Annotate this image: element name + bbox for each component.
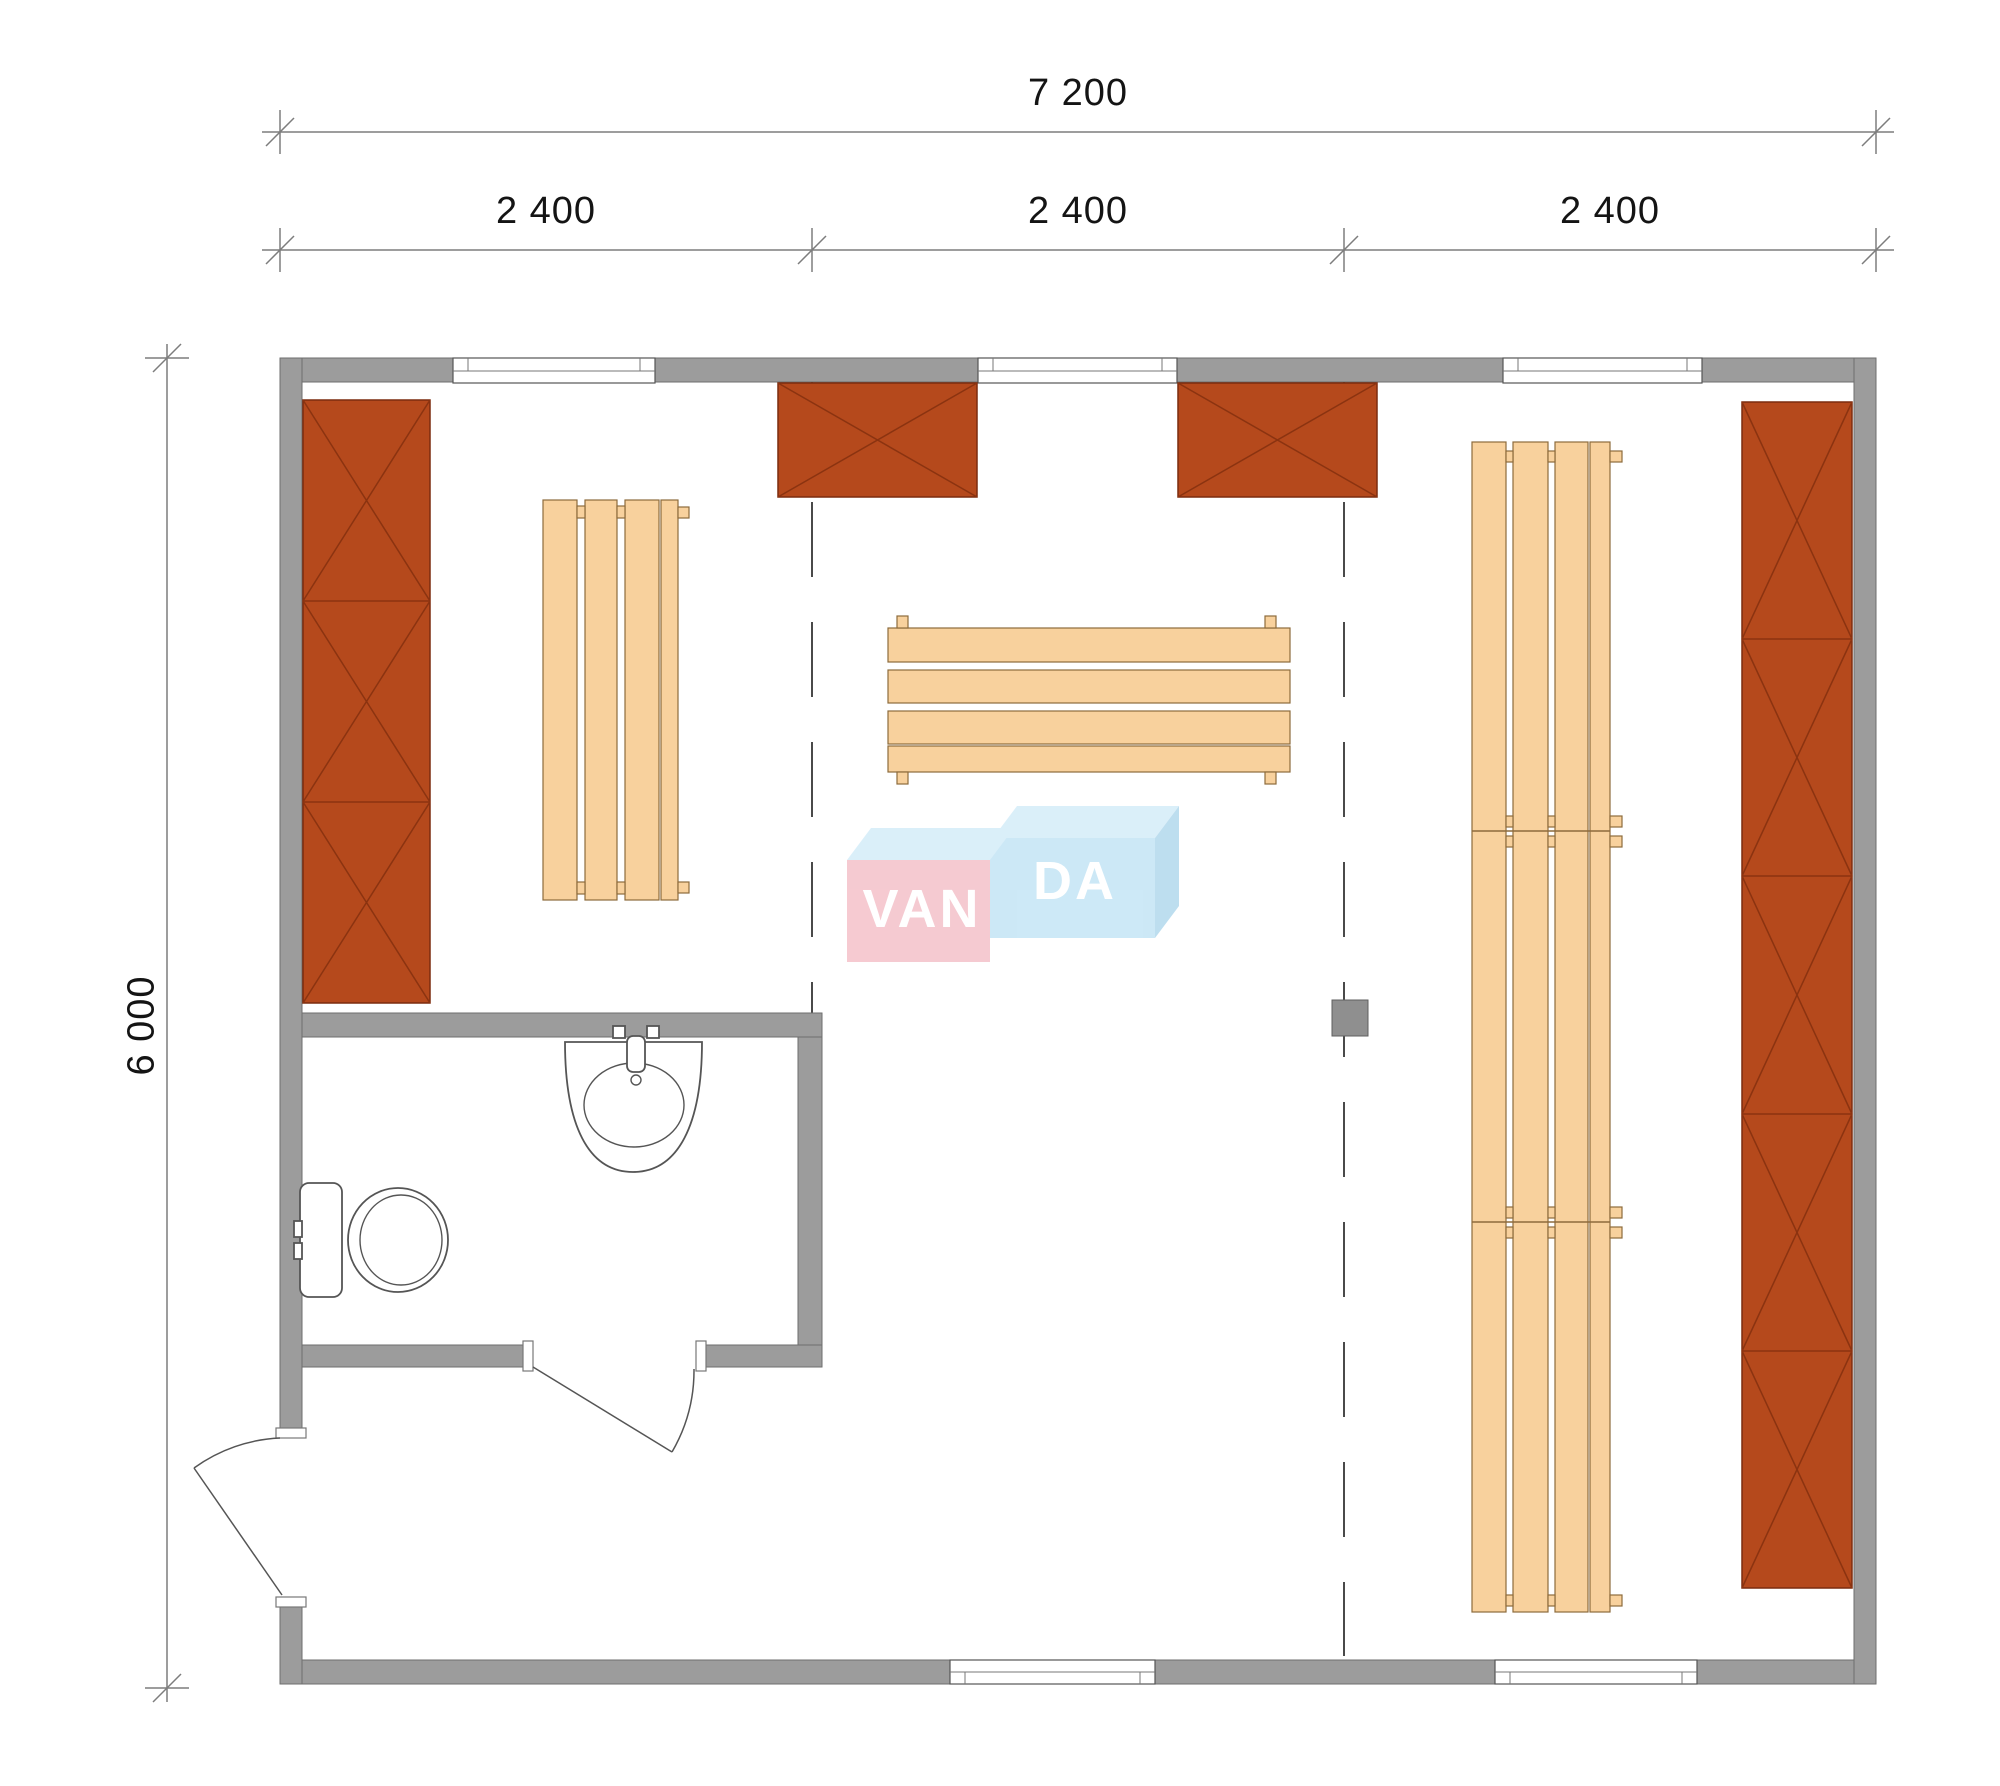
logo-pink-top-face bbox=[847, 828, 1014, 860]
module-width-label-3: 2 400 bbox=[1510, 190, 1710, 233]
window-bottom-middle bbox=[950, 1660, 1155, 1684]
window-top-middle bbox=[978, 358, 1177, 383]
window-bottom-right bbox=[1495, 1660, 1697, 1684]
logo-text-van: VAN bbox=[847, 878, 997, 940]
logo-blue-top-face bbox=[993, 806, 1179, 838]
module-width-label-1: 2 400 bbox=[446, 190, 646, 233]
entrance-door bbox=[194, 1428, 306, 1607]
module-width-label-2: 2 400 bbox=[978, 190, 1178, 233]
right-bench bbox=[1472, 442, 1622, 1612]
bathroom-door bbox=[533, 1367, 694, 1452]
height-label: 6 000 bbox=[121, 926, 164, 1126]
dimension-line-modules bbox=[262, 228, 1894, 272]
left-bench bbox=[543, 500, 689, 900]
floor-plan: 7 200 2 400 2 400 2 400 6 000 VAN DA bbox=[0, 0, 2000, 1786]
top-box-right bbox=[1178, 383, 1377, 497]
total-width-label: 7 200 bbox=[978, 72, 1178, 115]
sink bbox=[565, 1026, 702, 1172]
window-top-left bbox=[453, 358, 655, 383]
logo-text-da: DA bbox=[1000, 850, 1150, 912]
toilet bbox=[294, 1183, 448, 1297]
window-top-right bbox=[1503, 358, 1702, 383]
right-cabinet bbox=[1742, 402, 1852, 1588]
dimension-line-total-width bbox=[262, 110, 1894, 154]
top-box-left bbox=[778, 383, 977, 497]
middle-bench bbox=[888, 616, 1290, 784]
left-cabinet bbox=[303, 400, 430, 1003]
column-post bbox=[1332, 1000, 1368, 1036]
